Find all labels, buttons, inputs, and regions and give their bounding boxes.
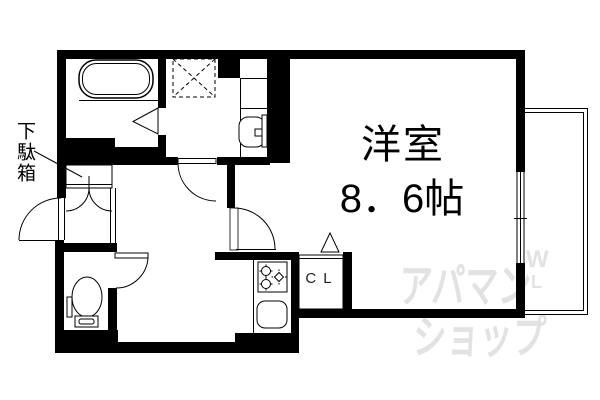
wall-hall-vertical	[227, 157, 235, 208]
floorplan-canvas: アパマン ショップ W L	[0, 0, 600, 400]
wall-toilet-top	[57, 243, 117, 252]
bathtub	[79, 60, 158, 101]
washing-machine-pan	[173, 59, 215, 97]
wall-right-lower	[516, 263, 525, 318]
shoe-cabinet-door-arc-right	[89, 188, 112, 211]
wall-bath-divider-upper	[158, 56, 166, 108]
wall-left-upper	[57, 50, 66, 198]
wall-toilet-right-lower	[108, 288, 117, 330]
bathtub-inner	[83, 64, 150, 95]
toilet-door	[115, 253, 148, 288]
toilet-paper-holder	[67, 297, 72, 317]
toilet-bowl	[72, 277, 102, 317]
wall-top	[57, 50, 525, 59]
main-room-door	[230, 208, 276, 250]
kitchen	[254, 260, 288, 333]
wall-column	[267, 50, 290, 163]
closet-label: CL	[299, 270, 345, 287]
wall-washroom-bottom-left	[57, 157, 178, 165]
wash-basin-tap	[255, 129, 262, 136]
wall-kitchen-top	[215, 252, 299, 260]
balcony-rail-inner	[525, 113, 584, 311]
wash-basin-ledge	[262, 115, 267, 147]
shoe-cabinet-label: 下駄箱	[11, 121, 38, 184]
wash-basin-counter	[239, 78, 267, 157]
main-door-arc	[234, 208, 275, 249]
entrance-door-arc	[19, 198, 61, 240]
kitchen-sink	[257, 301, 287, 328]
bathtub-outer	[79, 60, 153, 98]
window	[514, 172, 527, 263]
washroom-door-arc	[178, 163, 216, 201]
wall-washroom-bottom-right	[217, 157, 270, 165]
closet-door-triangle	[321, 233, 339, 252]
wall-bottom-main	[298, 309, 520, 318]
floorplan-drawing	[0, 0, 600, 400]
shoe-cabinet-door-arc-left	[66, 188, 89, 211]
balcony	[525, 109, 588, 315]
washroom-door-leaf	[178, 159, 216, 164]
wall-right-upper	[516, 56, 525, 172]
toilet	[67, 277, 102, 327]
washroom-door	[178, 159, 216, 202]
wall-washroom-chunk	[218, 50, 240, 78]
toilet-door-leaf	[115, 253, 148, 258]
main-door-frame	[230, 208, 238, 250]
balcony-rail-outer	[525, 109, 588, 315]
toilet-tank	[75, 316, 98, 327]
main-room-label: 洋室	[323, 112, 483, 170]
genkan-opening	[111, 188, 116, 243]
wall-bottom-step	[235, 333, 299, 353]
wall-kitchen-right	[291, 252, 299, 338]
entrance-door	[19, 198, 65, 241]
wall-bottom-left	[55, 342, 235, 353]
main-room-size: 8．6帖	[312, 166, 492, 224]
bathroom-folding-door	[133, 108, 158, 134]
toilet-door-arc	[116, 256, 148, 288]
